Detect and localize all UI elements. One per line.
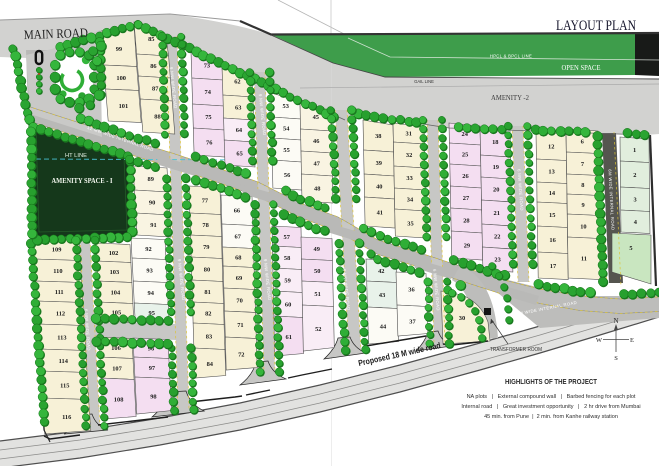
- svg-text:58: 58: [284, 255, 290, 262]
- svg-text:84: 84: [207, 361, 214, 368]
- svg-text:73: 73: [204, 63, 210, 70]
- svg-text:93: 93: [146, 267, 152, 274]
- svg-text:35: 35: [407, 221, 413, 228]
- svg-text:49: 49: [314, 246, 320, 253]
- svg-text:102: 102: [109, 250, 119, 257]
- svg-text:18: 18: [492, 139, 498, 146]
- svg-text:63: 63: [235, 105, 241, 112]
- svg-text:47: 47: [314, 161, 321, 168]
- svg-text:69: 69: [236, 275, 242, 282]
- svg-text:71: 71: [237, 322, 243, 329]
- svg-text:57: 57: [284, 234, 291, 241]
- svg-text:17: 17: [550, 263, 557, 270]
- svg-text:Internal road | Great inve: Internal road | Great investment opportu…: [461, 404, 640, 410]
- svg-text:107: 107: [112, 365, 122, 372]
- svg-text:32: 32: [406, 152, 412, 159]
- svg-text:44: 44: [380, 323, 387, 330]
- svg-text:90: 90: [149, 200, 155, 207]
- svg-text:40: 40: [376, 184, 382, 191]
- svg-text:91: 91: [150, 222, 156, 229]
- svg-text:66: 66: [234, 207, 241, 214]
- svg-text:NA plots | External compou: NA plots | External compound wall | Barb…: [467, 394, 636, 400]
- svg-text:70: 70: [236, 297, 242, 304]
- svg-text:10: 10: [580, 223, 586, 230]
- svg-text:78: 78: [202, 222, 208, 229]
- svg-text:36: 36: [408, 286, 415, 293]
- svg-text:38: 38: [375, 133, 381, 140]
- svg-text:65: 65: [236, 151, 242, 158]
- svg-text:89: 89: [148, 176, 154, 183]
- svg-text:15: 15: [549, 212, 555, 219]
- svg-text:21: 21: [494, 210, 500, 217]
- svg-text:42: 42: [378, 268, 384, 275]
- svg-text:AMENITY SPACE - I: AMENITY SPACE - I: [52, 176, 113, 185]
- svg-text:67: 67: [235, 233, 242, 240]
- svg-text:111: 111: [55, 289, 64, 296]
- svg-text:37: 37: [409, 318, 416, 325]
- svg-text:46: 46: [313, 138, 320, 145]
- svg-text:82: 82: [205, 310, 211, 317]
- svg-text:114: 114: [59, 358, 69, 365]
- svg-text:68: 68: [235, 254, 241, 261]
- svg-text:52: 52: [315, 326, 321, 333]
- svg-text:53: 53: [283, 103, 289, 110]
- svg-text:5: 5: [629, 245, 632, 252]
- svg-text:51: 51: [314, 291, 320, 298]
- svg-text:54: 54: [283, 126, 290, 133]
- svg-text:23: 23: [494, 257, 500, 264]
- svg-text:64: 64: [236, 127, 243, 134]
- svg-text:41: 41: [377, 210, 383, 217]
- svg-text:113: 113: [57, 334, 66, 341]
- svg-text:43: 43: [379, 292, 385, 299]
- svg-text:72: 72: [238, 351, 244, 358]
- svg-text:86: 86: [150, 63, 157, 70]
- svg-text:92: 92: [145, 246, 151, 253]
- svg-text:28: 28: [463, 218, 469, 225]
- svg-text:25: 25: [462, 152, 468, 159]
- svg-text:99: 99: [116, 46, 122, 53]
- svg-text:39: 39: [376, 160, 382, 167]
- svg-text:W: W: [596, 337, 603, 344]
- svg-text:13: 13: [548, 168, 554, 175]
- svg-text:27: 27: [463, 195, 470, 202]
- svg-text:OPEN SPACE: OPEN SPACE: [562, 63, 601, 72]
- svg-text:33: 33: [406, 175, 412, 182]
- svg-text:11: 11: [581, 255, 587, 262]
- svg-text:60: 60: [285, 301, 291, 308]
- svg-text:108: 108: [114, 396, 124, 403]
- svg-text:110: 110: [53, 268, 62, 275]
- svg-text:30: 30: [459, 315, 465, 322]
- svg-text:97: 97: [149, 365, 156, 372]
- svg-text:12: 12: [548, 143, 554, 150]
- svg-text:45: 45: [313, 114, 319, 121]
- svg-text:TRANSFORMER ROOM: TRANSFORMER ROOM: [490, 347, 542, 353]
- svg-text:1: 1: [633, 147, 636, 154]
- svg-text:94: 94: [148, 290, 155, 297]
- svg-text:HIGHLIGHTS OF THE PROJECT: HIGHLIGHTS OF THE PROJECT: [505, 377, 597, 386]
- svg-text:100: 100: [116, 75, 126, 82]
- svg-text:61: 61: [286, 334, 292, 341]
- svg-text:2: 2: [633, 172, 636, 179]
- svg-text:31: 31: [406, 131, 412, 138]
- svg-text:19: 19: [493, 164, 499, 171]
- svg-text:48: 48: [314, 186, 320, 193]
- svg-text:9: 9: [581, 202, 584, 209]
- svg-text:45 min. from Pune | 2 min. f: 45 min. from Pune | 2 min. from Kanhe ra…: [484, 414, 618, 420]
- svg-text:E: E: [630, 337, 634, 344]
- svg-text:59: 59: [284, 277, 290, 284]
- svg-text:29: 29: [464, 243, 470, 250]
- svg-text:98: 98: [150, 393, 156, 400]
- svg-text:101: 101: [119, 103, 129, 110]
- svg-text:85: 85: [148, 36, 154, 43]
- svg-text:88: 88: [154, 114, 160, 121]
- svg-text:75: 75: [205, 114, 211, 121]
- svg-text:26: 26: [462, 173, 469, 180]
- svg-text:62: 62: [234, 79, 240, 86]
- svg-text:104: 104: [111, 289, 121, 296]
- svg-text:81: 81: [204, 289, 210, 296]
- svg-text:55: 55: [283, 147, 289, 154]
- svg-text:16: 16: [549, 237, 556, 244]
- svg-text:116: 116: [62, 414, 72, 421]
- svg-text:N: N: [613, 317, 618, 325]
- svg-text:56: 56: [284, 172, 291, 179]
- svg-text:50: 50: [314, 268, 320, 275]
- svg-text:3: 3: [633, 196, 636, 203]
- svg-text:74: 74: [205, 89, 212, 96]
- svg-text:83: 83: [206, 333, 212, 340]
- svg-text:8: 8: [581, 182, 584, 189]
- svg-text:S: S: [614, 355, 618, 362]
- svg-text:MAIN ROAD: MAIN ROAD: [24, 25, 88, 42]
- svg-text:76: 76: [206, 140, 213, 147]
- svg-text:20: 20: [493, 187, 499, 194]
- svg-text:22: 22: [494, 234, 500, 241]
- svg-text:80: 80: [204, 266, 210, 273]
- svg-text:87: 87: [152, 86, 159, 93]
- svg-text:109: 109: [52, 246, 62, 253]
- svg-text:103: 103: [110, 269, 120, 276]
- svg-text:14: 14: [549, 190, 556, 197]
- svg-text:GAIL LINE: GAIL LINE: [414, 79, 434, 84]
- svg-text:79: 79: [203, 244, 209, 251]
- svg-text:HT LINE: HT LINE: [65, 153, 87, 159]
- svg-text:34: 34: [407, 197, 414, 204]
- svg-text:112: 112: [56, 310, 65, 317]
- svg-text:LAYOUT PLAN: LAYOUT PLAN: [556, 18, 636, 34]
- svg-text:77: 77: [202, 197, 209, 204]
- svg-text:AMENITY -2: AMENITY -2: [491, 93, 529, 102]
- svg-text:HPCL & BPCL LINE: HPCL & BPCL LINE: [490, 54, 532, 59]
- svg-text:115: 115: [60, 382, 69, 389]
